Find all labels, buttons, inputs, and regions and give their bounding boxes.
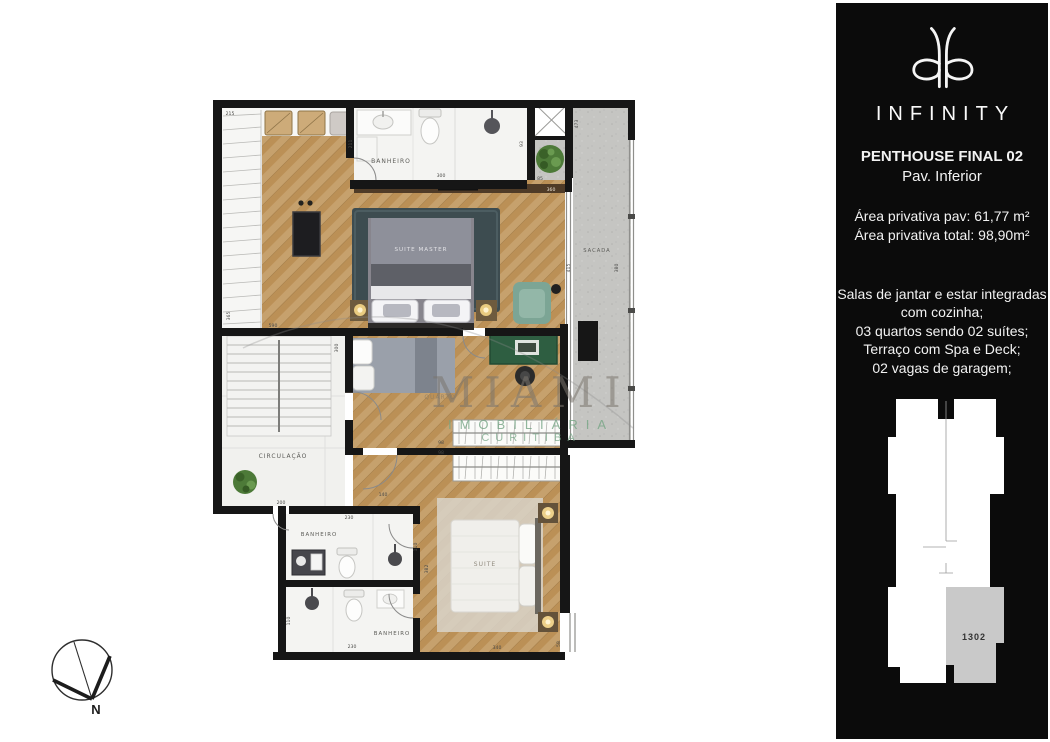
room-label-suite-master: SUITE MASTER [394, 247, 447, 253]
dp-logo-icon [896, 25, 988, 99]
area-pav: Área privativa pav: 61,77 m² [854, 207, 1029, 226]
quarto-bed [345, 337, 455, 393]
building-keyplan: 1302 [857, 395, 1027, 725]
dimension-label: 340 [493, 645, 502, 651]
feature-line: 02 vagas de garagem; [837, 359, 1046, 377]
compass-rose: N [38, 622, 134, 724]
room-label-sacada: SACADA [583, 248, 610, 254]
brand-name: INFINITY [869, 103, 1015, 126]
dimension-label: 211 [348, 140, 354, 149]
dimension-label: 360 [547, 187, 556, 193]
dimension-label: 93 [519, 141, 525, 147]
dimension-label: 98 [438, 450, 444, 456]
closet-boxes [265, 111, 350, 135]
plant [233, 470, 257, 494]
dimension-label: 200 [277, 500, 286, 506]
area-info: Área privativa pav: 61,77 m² Área privat… [854, 207, 1029, 245]
dimension-label: 215 [226, 111, 235, 117]
dimension-label: 98 [438, 440, 444, 446]
floor-plan: BANHEIRO SUITE MASTER SACADA QUARTO CIRC… [213, 96, 641, 666]
stairs [227, 336, 331, 436]
room-label-banheiro-mid: BANHEIRO [301, 532, 337, 538]
room-label-circulacao: CIRCULAÇÃO [259, 453, 308, 460]
info-sidebar: INFINITY PENTHOUSE FINAL 02 Pav. Inferio… [836, 3, 1048, 739]
area-total: Área privativa total: 98,90m² [854, 226, 1029, 245]
dimension-label: 382 [424, 565, 430, 574]
room-label-quarto: QUARTO [424, 394, 455, 401]
dimension-label: 415 [566, 264, 572, 273]
dimension-label: 380 [614, 264, 620, 273]
dimension-label: 58 [556, 641, 562, 647]
dimension-label: 110 [413, 543, 419, 552]
dimension-label: 230 [348, 644, 357, 650]
unit-title: PENTHOUSE FINAL 02 [861, 148, 1023, 165]
dimension-label: 140 [379, 492, 388, 498]
dimension-label: 230 [345, 515, 354, 521]
dimension-label: 110 [286, 617, 292, 626]
suite-master-bed [368, 218, 474, 330]
floorplan-page: BANHEIRO SUITE MASTER SACADA QUARTO CIRC… [0, 0, 1050, 742]
dimension-label: 85 [537, 176, 543, 182]
feature-line: com cozinha; [837, 303, 1046, 321]
feature-line: 03 quartos sendo 02 suítes; [837, 322, 1046, 340]
floor-subtitle: Pav. Inferior [902, 168, 982, 185]
keyplan-unit-other [888, 587, 946, 683]
room-label-suite: SUITE [474, 561, 496, 568]
dimension-label: 300 [334, 344, 340, 353]
room-label-banheiro-bottom: BANHEIRO [374, 631, 410, 637]
plant [536, 145, 564, 173]
compass-north-label: N [91, 702, 100, 717]
dimension-label: 590 [269, 323, 278, 329]
dimension-label: 365 [226, 312, 232, 321]
keyplan-unit-label: 1302 [962, 632, 986, 642]
feature-line: Terraço com Spa e Deck; [837, 340, 1046, 358]
suite-furniture [437, 498, 558, 632]
feature-line: Salas de jantar e estar integradas [837, 285, 1046, 303]
dimension-label: 473 [574, 120, 580, 129]
dimension-label: 300 [437, 173, 446, 179]
feature-list: Salas de jantar e estar integradas com c… [837, 285, 1046, 377]
room-label-banheiro-top: BANHEIRO [371, 158, 411, 165]
